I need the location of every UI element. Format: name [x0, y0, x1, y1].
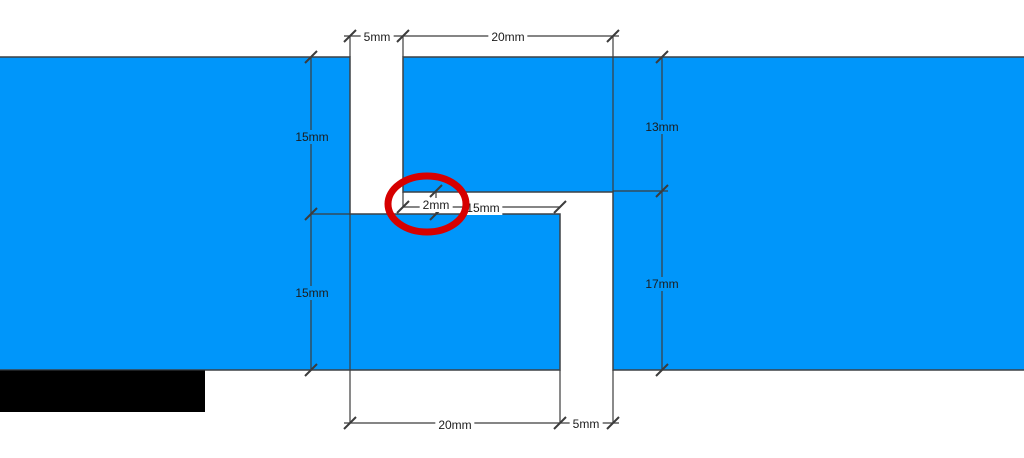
dim-label-right-lower: 17mm — [642, 277, 681, 291]
dim-label-left-upper: 15mm — [292, 130, 331, 144]
drawing-svg — [0, 0, 1024, 458]
dim-label-right-upper: 13mm — [642, 120, 681, 134]
dim-label-top-tab: 20mm — [488, 30, 527, 44]
dim-label-bottom-gap: 5mm — [570, 417, 603, 431]
dim-label-left-lower: 15mm — [292, 286, 331, 300]
dim-label-middle-gap: 2mm — [420, 198, 453, 212]
drawing-canvas: 5mm 20mm 15mm 15mm 13mm 17mm 2mm 15mm 20… — [0, 0, 1024, 458]
dim-label-middle-overlap: 15mm — [463, 201, 502, 215]
dim-label-top-gap: 5mm — [361, 30, 394, 44]
redaction-block — [0, 371, 205, 413]
dim-label-bottom-tab: 20mm — [435, 418, 474, 432]
